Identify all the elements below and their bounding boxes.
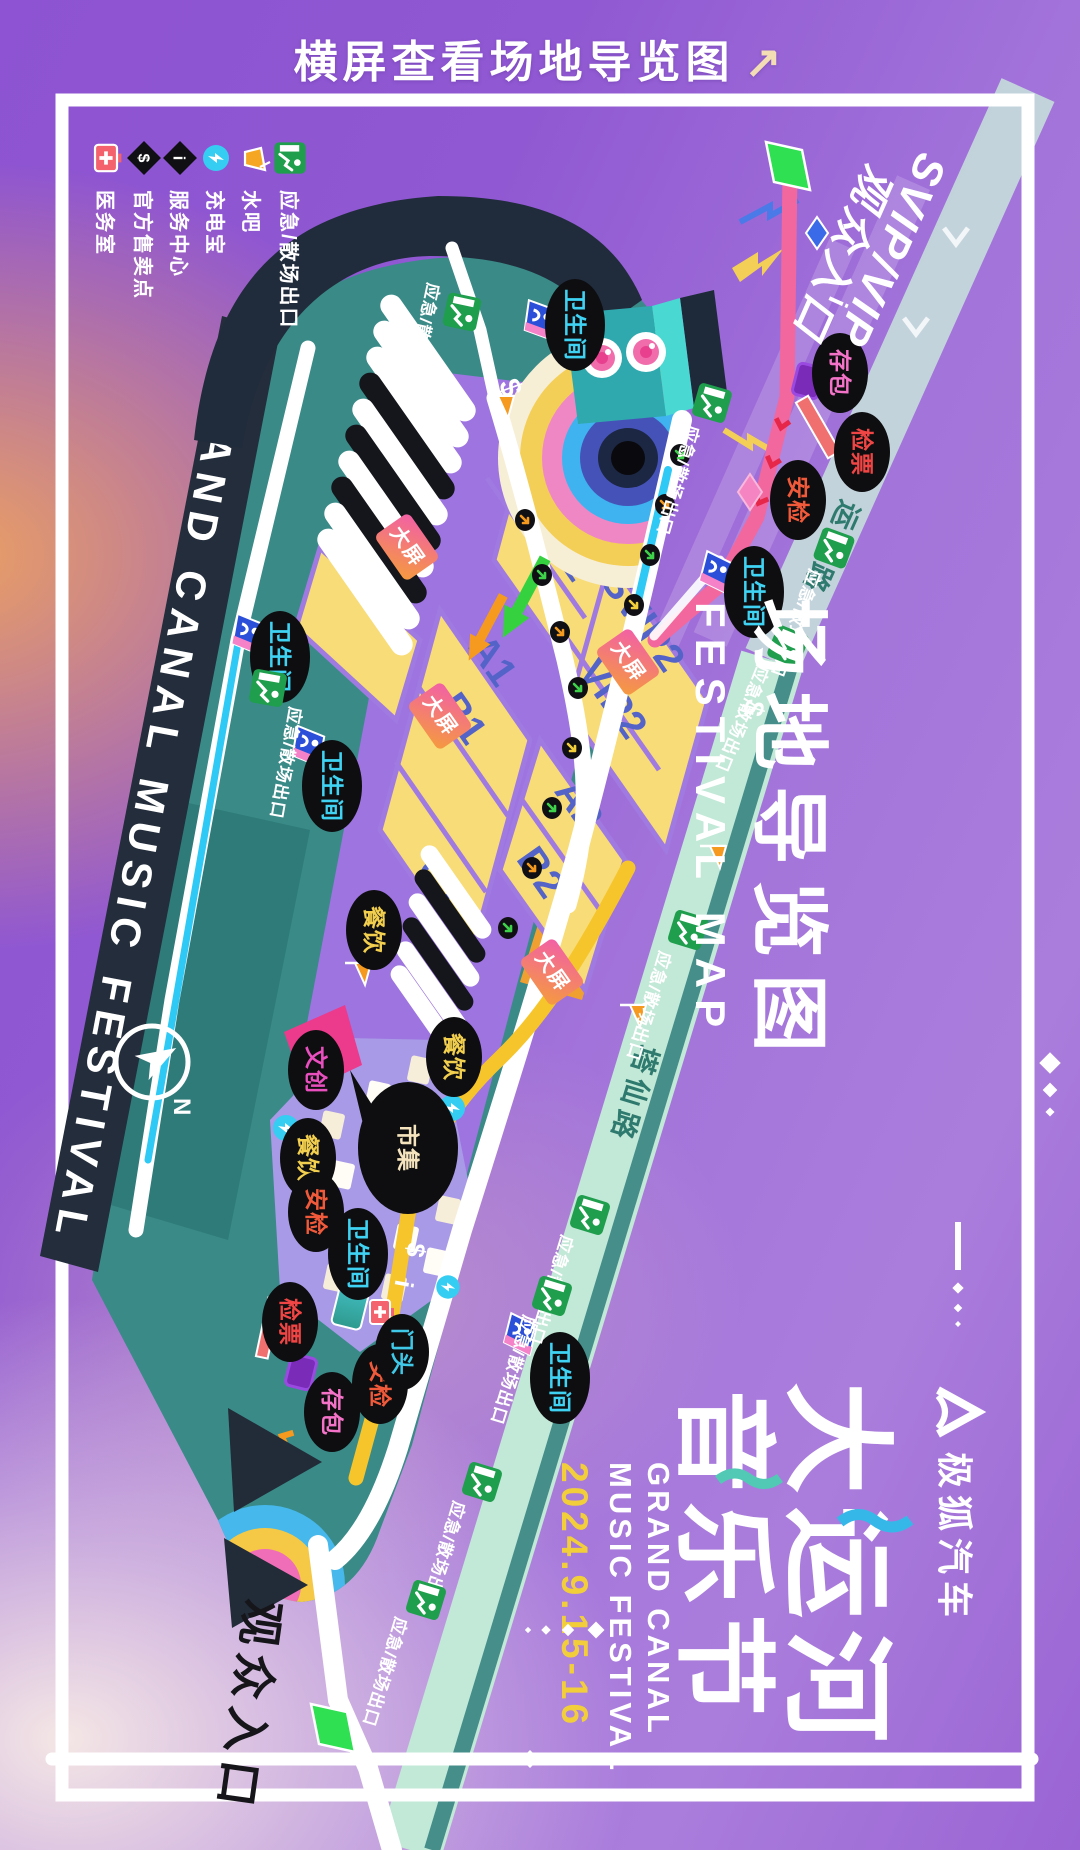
svg-text:餐饮: 餐饮 [441,1033,467,1081]
legend-label-info: 服务中心 [167,190,191,278]
cultural-bubble: 文创 [288,1030,344,1110]
ticket-check-bubble: 检票 [262,1282,318,1362]
audience-entrance-text: 观众入口 [208,1597,290,1818]
info-icon: i [163,141,197,175]
svg-text:安检: 安检 [303,1188,329,1236]
svip-entrance-flag [766,142,810,190]
mascot-eye [626,332,666,372]
legend-label-charger: 充电宝 [203,190,227,256]
svg-text:$: $ [135,154,152,163]
charger-icon [203,145,229,171]
festival-date: 2024.9.15-16 [554,1462,595,1728]
festival-title-line2: 音乐节 [666,1390,780,1726]
legend-label-medical: 医务室 [93,190,117,256]
arcfox-logo [938,1390,978,1434]
svg-text:i: i [170,156,189,161]
sponsor-name: 极狐汽车 [934,1452,975,1624]
svg-text:门头: 门头 [389,1328,415,1376]
legend-label-drink: 水吧 [239,190,262,234]
exit-icon [274,142,305,173]
drink-icon [245,148,270,170]
festival-title-line1: 大运河 [774,1382,899,1754]
svg-text:安检: 安检 [785,476,811,524]
exit-icon [248,668,287,707]
map-title-en: FESTIVAL MAP [687,602,734,1038]
festival-en-line1: GRAND CANAL [641,1462,676,1737]
security-check-bubble: 安检 [770,460,826,540]
rotate-arrow-icon: ↗ [745,38,787,87]
festival-en-line2: MUSIC FESTIVAL [603,1462,638,1774]
svg-text:卫生间: 卫生间 [547,1342,573,1414]
svg-text:存包: 存包 [319,1388,345,1436]
food-bubble: 餐饮 [426,1017,482,1097]
toilet-bubble: 卫生间 [545,279,605,371]
svg-text:卫生间: 卫生间 [345,1218,371,1290]
map-title-zh: 场地导览图 [745,598,833,1068]
ticket-check-bubble: 检票 [834,412,890,492]
gate-bubble: 门头 [375,1314,429,1390]
svg-text:餐饮: 餐饮 [361,906,387,954]
instruction-text: 横屏查看场地导览图 [294,38,735,87]
instruction-banner: 横屏查看场地导览图↗ [0,26,1080,90]
food-bubble: 餐饮 [346,890,402,970]
exit-icon [442,292,482,332]
svg-text:卫生间: 卫生间 [319,750,345,822]
bag-storage-bubble: 存包 [304,1372,360,1452]
medical-icon [95,145,121,171]
festival-map-canvas: 运兴路 塔仙路 GRAND CANAL MUSIC FESTIVAL [0,0,1080,1850]
sales-icon: $ [127,141,161,175]
map-title: 场地导览图 FESTIVAL MAP [687,598,833,1068]
svg-text:市集: 市集 [395,1124,421,1172]
svg-text:卫生间: 卫生间 [562,289,588,361]
svg-text:存包: 存包 [827,349,853,397]
legend-label-sales: 官方售卖点 [131,190,155,300]
lightning-bolt-icon [732,248,784,282]
svg-text:文创: 文创 [303,1046,329,1094]
security-check-bubble: 安检 [288,1172,344,1252]
compass-north-label: N [168,1098,195,1115]
exit-label: 应急/散场出口 [359,1615,411,1730]
rotated-landscape-scene: 运兴路 塔仙路 GRAND CANAL MUSIC FESTIVAL [0,0,1080,1850]
svg-text:检票: 检票 [277,1298,303,1346]
toilet-bubble: 卫生间 [302,740,362,832]
legend-label-exit: 应急/散场出口 [277,190,301,330]
svg-text:检票: 检票 [849,428,875,476]
charger-icon [436,1275,459,1298]
